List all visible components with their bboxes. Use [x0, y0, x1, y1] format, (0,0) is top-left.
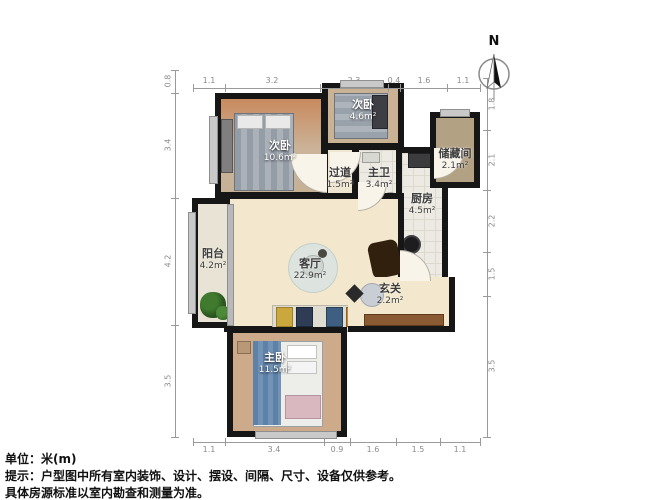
table-decor: [318, 249, 327, 258]
dim-label-right: 1.5: [488, 268, 497, 281]
bedside-cabinet: [372, 95, 388, 129]
bed-blanket: [253, 341, 281, 425]
room-entry: [348, 277, 455, 332]
nightstand: [237, 341, 251, 354]
dim-tick: [193, 438, 194, 446]
armchair: [367, 238, 404, 279]
dim-tick: [225, 84, 226, 92]
footer-note-line2: 具体房源标准以室内勘查和测量为准。: [5, 484, 209, 500]
dim-label-bottom: 1.5: [412, 445, 425, 454]
dim-label-bottom: 1.6: [367, 445, 380, 454]
dim-label-right: 2.1: [488, 154, 497, 167]
dim-label-top: 1.1: [203, 76, 216, 85]
window-bedroom-left: [209, 116, 218, 184]
dim-tick: [193, 84, 194, 92]
dim-label-right: 3.5: [488, 360, 497, 373]
wardrobe: [221, 119, 233, 173]
window-balcony: [188, 212, 196, 314]
coffee-table: [302, 255, 324, 277]
compass-rose-icon: [472, 48, 516, 100]
dim-label-top: 3.2: [266, 76, 279, 85]
dim-tick: [171, 437, 179, 438]
room-master-bedroom: [227, 327, 347, 437]
dim-tick: [320, 84, 321, 92]
dim-tick: [483, 296, 491, 297]
dim-label-bottom: 0.9: [331, 445, 344, 454]
dim-label-right: 2.2: [488, 215, 497, 228]
dim-tick: [225, 438, 226, 446]
bed-pillow: [265, 115, 291, 129]
dim-tick: [171, 198, 179, 199]
dim-tick: [447, 84, 448, 92]
dim-tick: [171, 70, 179, 71]
dim-label-top: 1.1: [457, 76, 470, 85]
footer-unit-line: 单位：米(m): [5, 450, 76, 467]
sofa-cushion: [276, 307, 293, 327]
dim-tick: [171, 93, 179, 94]
dim-line-left: [175, 70, 176, 437]
dim-tick: [388, 84, 389, 92]
dim-tick: [350, 438, 351, 446]
room-bedroom-second-top: [322, 83, 404, 149]
dim-line-right: [487, 78, 488, 437]
balcony-sliding-door: [227, 204, 234, 326]
dim-label-left: 3.5: [164, 375, 173, 388]
footer-note-line1: 提示：户型图中所有室内装饰、设计、摆设、间隔、尺寸、设备仅供参考。: [5, 467, 401, 484]
compass-north-label: N: [472, 36, 516, 48]
dim-tick: [396, 438, 397, 446]
dim-tick: [483, 130, 491, 131]
dim-tick: [324, 438, 325, 446]
sink: [362, 152, 380, 163]
bed-pillow: [287, 345, 317, 359]
bed-throw: [285, 395, 321, 419]
bed-pillow: [237, 115, 263, 129]
dim-label-left: 4.2: [164, 255, 173, 268]
dim-label-bottom: 1.1: [203, 445, 216, 454]
compass: N: [472, 36, 516, 104]
dim-tick: [440, 438, 441, 446]
dim-tick: [483, 190, 491, 191]
sofa-cushion: [296, 307, 313, 327]
floorplan-page: 次卧 10.6m² 次卧 4.6m² 过道 1.5m² 主卫 3.4m² 厨房 …: [0, 0, 667, 500]
dim-line-top: [193, 88, 480, 89]
dim-label-left: 3.4: [164, 139, 173, 152]
dim-label-bottom: 3.4: [268, 445, 281, 454]
dim-label-left: 0.8: [164, 75, 173, 88]
window-storage: [440, 109, 470, 117]
dim-label-bottom: 1.1: [454, 445, 467, 454]
dim-label-top: 1.6: [418, 76, 431, 85]
dim-tick: [480, 438, 481, 446]
room-balcony: [192, 198, 230, 328]
entry-rug: [360, 283, 384, 307]
sofa-cushion: [326, 307, 343, 327]
window-bedroom-top: [340, 80, 384, 88]
door-mat: [364, 314, 444, 326]
dim-tick: [400, 84, 401, 92]
dim-label-top: 0.4: [388, 76, 401, 85]
dim-tick: [483, 252, 491, 253]
bed-pillow: [287, 361, 317, 374]
window-master-bedroom: [255, 431, 337, 439]
dim-line-bottom: [193, 442, 480, 443]
dim-tick: [483, 437, 491, 438]
dim-tick: [171, 325, 179, 326]
